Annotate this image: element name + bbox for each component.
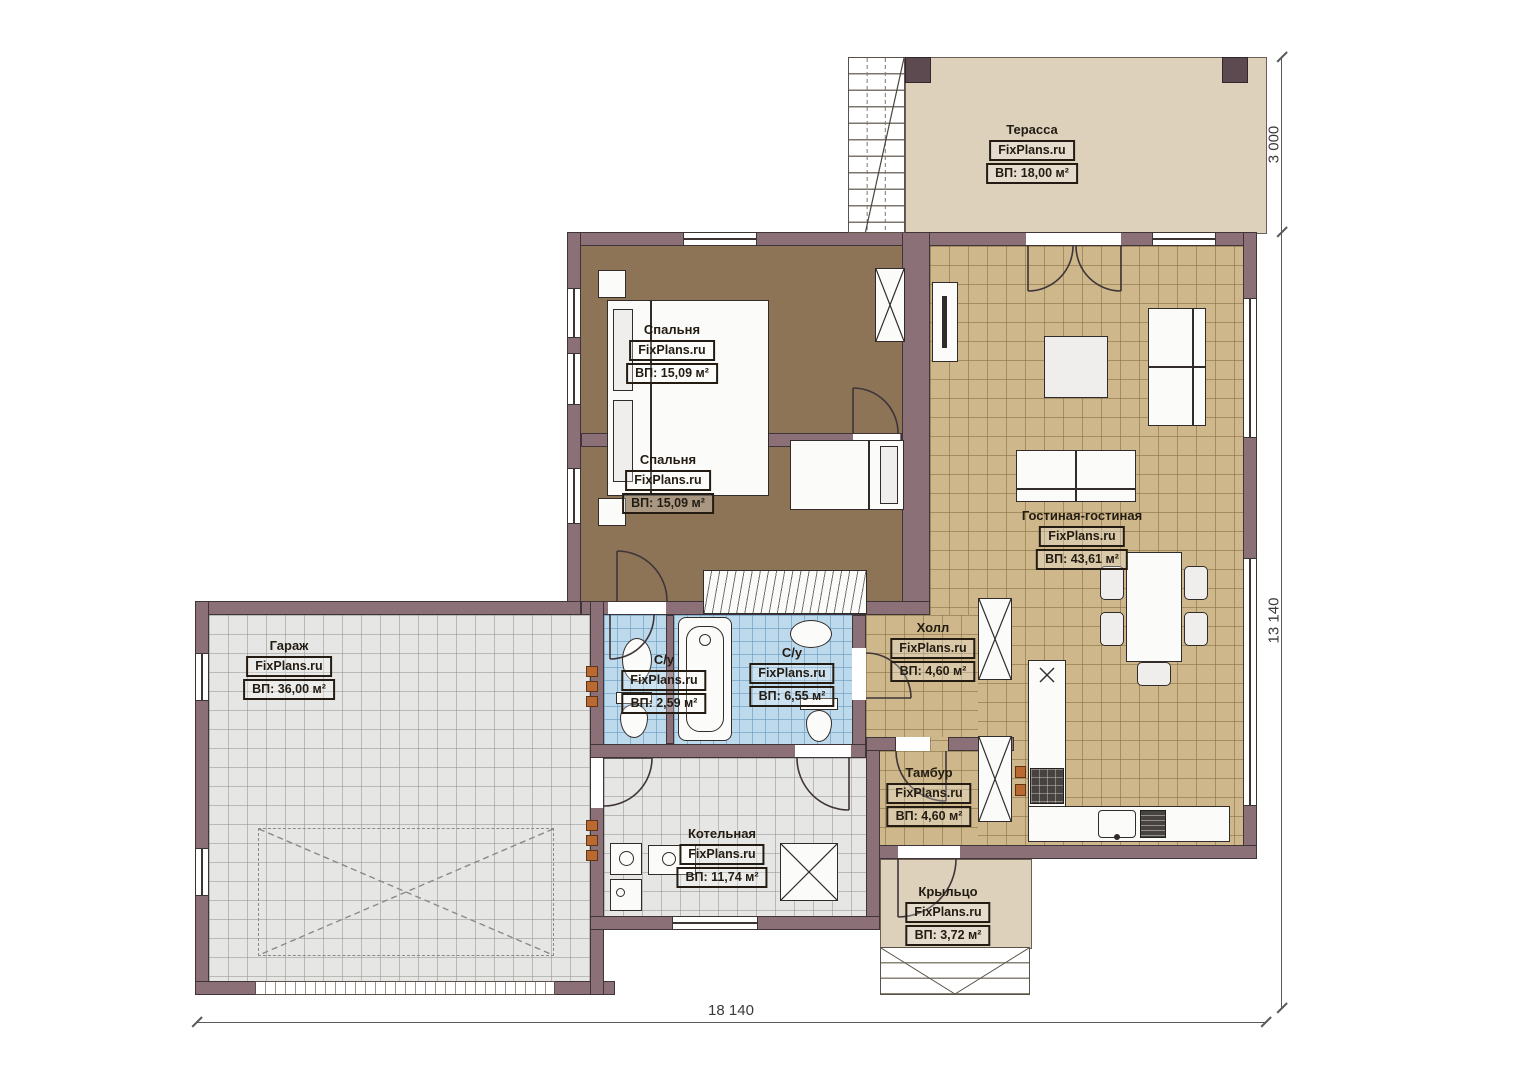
door-arc <box>853 388 898 433</box>
door-arcs-layer <box>0 0 1528 1080</box>
area-box: ВП: 11,74 м² <box>676 867 767 888</box>
room-label-terrace: Терасса FixPlans.ru ВП: 18,00 м² <box>986 122 1078 184</box>
door-arc <box>1076 246 1121 291</box>
brand-box: FixPlans.ru <box>246 656 331 677</box>
room-label-bedroom1: Спальня FixPlans.ru ВП: 15,09 м² <box>626 322 718 384</box>
door-arc <box>1028 246 1073 291</box>
dim-text-width: 18 140 <box>691 1002 771 1019</box>
brand-box: FixPlans.ru <box>1039 526 1124 547</box>
brand-box: FixPlans.ru <box>629 340 714 361</box>
area-box: ВП: 4,60 м² <box>887 806 972 827</box>
brand-box: FixPlans.ru <box>749 663 834 684</box>
room-label-porch: Крыльцо FixPlans.ru ВП: 3,72 м² <box>905 884 990 946</box>
brand-box: FixPlans.ru <box>905 902 990 923</box>
room-name: С/у <box>782 645 802 660</box>
room-label-wc: С/у FixPlans.ru ВП: 2,59 м² <box>621 652 706 714</box>
room-label-tambur: Тамбур FixPlans.ru ВП: 4,60 м² <box>886 765 971 827</box>
area-box: ВП: 3,72 м² <box>906 925 991 946</box>
brand-box: FixPlans.ru <box>621 670 706 691</box>
area-box: ВП: 36,00 м² <box>243 679 335 700</box>
area-box: ВП: 6,55 м² <box>750 686 835 707</box>
area-box: ВП: 43,61 м² <box>1036 549 1128 570</box>
dim-line-width <box>197 1022 1266 1023</box>
room-label-bathroom: С/у FixPlans.ru ВП: 6,55 м² <box>749 645 834 707</box>
brand-box: FixPlans.ru <box>890 638 975 659</box>
brand-box: FixPlans.ru <box>989 140 1074 161</box>
room-label-boiler: Котельная FixPlans.ru ВП: 11,74 м² <box>676 826 767 888</box>
brand-box: FixPlans.ru <box>625 470 710 491</box>
room-label-garage: Гараж FixPlans.ru ВП: 36,00 м² <box>243 638 335 700</box>
room-name: Холл <box>917 620 950 635</box>
dim-text-terrace: 3 000 <box>1266 115 1283 175</box>
room-name: Тамбур <box>905 765 952 780</box>
area-box: ВП: 18,00 м² <box>986 163 1078 184</box>
room-name: Спальня <box>644 322 700 337</box>
room-label-bedroom2: Спальня FixPlans.ru ВП: 15,09 м² <box>622 452 714 514</box>
room-name: С/у <box>654 652 674 667</box>
room-label-living: Гостиная-гостиная FixPlans.ru ВП: 43,61 … <box>1022 508 1142 570</box>
door-arc <box>617 551 667 601</box>
area-box: ВП: 2,59 м² <box>622 693 707 714</box>
brand-box: FixPlans.ru <box>679 844 764 865</box>
room-name: Гараж <box>270 638 309 653</box>
dim-text-height: 13 140 <box>1266 587 1283 655</box>
area-box: ВП: 15,09 м² <box>622 493 714 514</box>
area-box: ВП: 15,09 м² <box>626 363 718 384</box>
brand-box: FixPlans.ru <box>886 783 971 804</box>
room-name: Терасса <box>1006 122 1058 137</box>
area-box: ВП: 4,60 м² <box>891 661 976 682</box>
room-label-hall: Холл FixPlans.ru ВП: 4,60 м² <box>890 620 975 682</box>
floor-plan: Терасса FixPlans.ru ВП: 18,00 м² Спальня… <box>0 0 1528 1080</box>
room-name: Спальня <box>640 452 696 467</box>
room-name: Гостиная-гостиная <box>1022 508 1142 523</box>
room-name: Котельная <box>688 826 756 841</box>
door-arc <box>604 758 652 806</box>
door-arc <box>797 758 849 810</box>
room-name: Крыльцо <box>918 884 977 899</box>
